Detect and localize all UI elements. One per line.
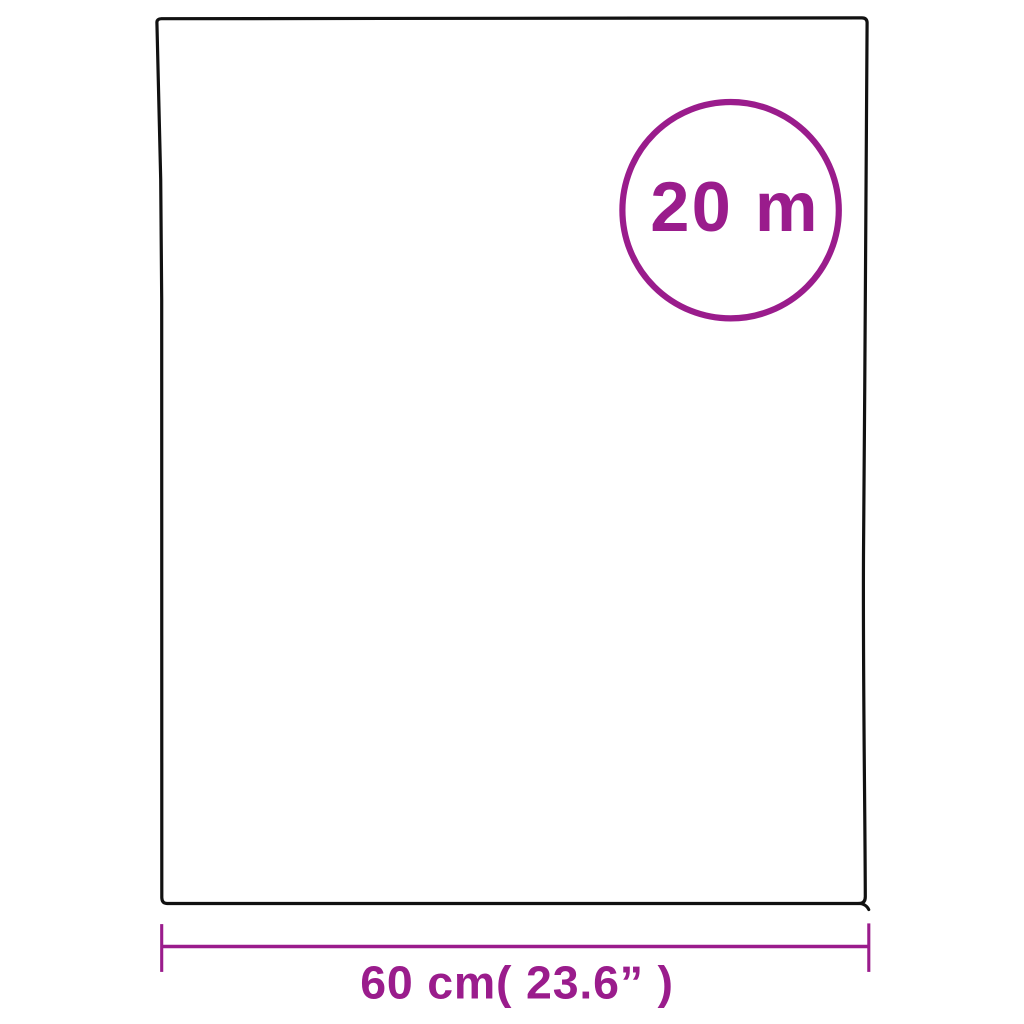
svg-text:20 m: 20 m (650, 167, 820, 246)
svg-text:60 cm( 23.6” ): 60 cm( 23.6” ) (360, 956, 674, 1008)
